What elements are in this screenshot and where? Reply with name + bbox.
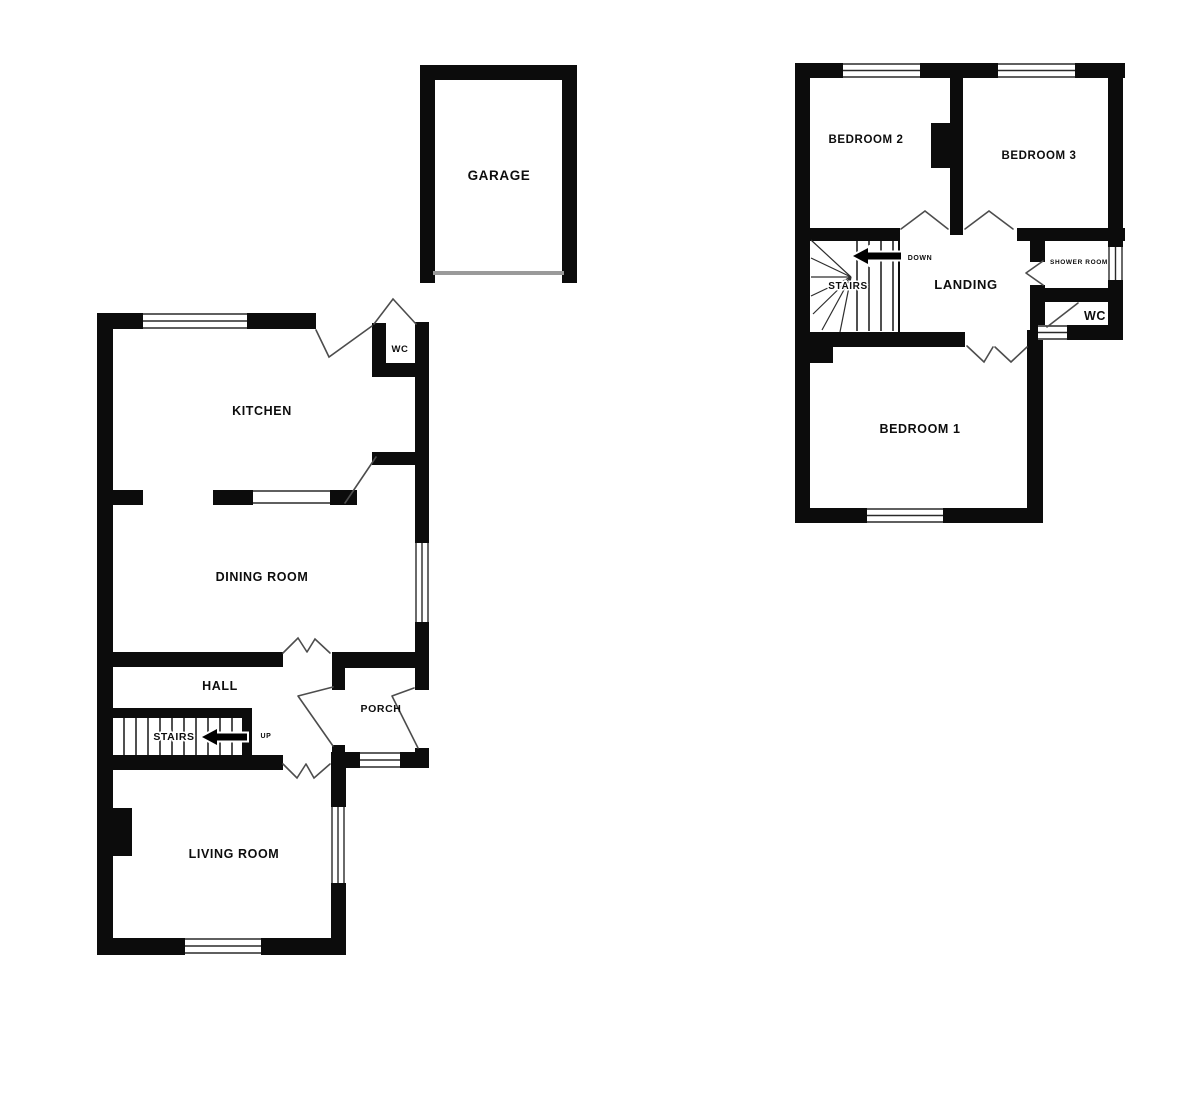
ground-stairs-label: STAIRS — [153, 731, 194, 743]
hall-porch-door-swing — [298, 687, 333, 746]
dining-room-window — [415, 543, 429, 622]
stairs-down-label: DOWN — [908, 255, 933, 262]
wc-window — [1038, 325, 1067, 340]
shower-room-window — [1108, 247, 1123, 280]
wc-door-swing — [374, 299, 416, 324]
bedroom1-chimney-breast — [810, 337, 833, 363]
porch-label: PORCH — [361, 703, 402, 715]
stairs-up-label: UP — [261, 733, 272, 740]
garage-plan: GARAGE — [420, 65, 577, 283]
porch-window — [360, 752, 400, 768]
bedroom2-chimney-breast — [931, 123, 950, 168]
hall-label: HALL — [202, 679, 238, 693]
bedroom2-label: BEDROOM 2 — [828, 134, 903, 146]
first-floor-stairs-label: STAIRS — [828, 281, 868, 292]
first-floor-wc-label: WC — [1084, 309, 1106, 323]
dining-hall-door-swing — [283, 638, 330, 653]
living-room-front-window — [185, 938, 261, 955]
dining-room-label: DINING ROOM — [216, 570, 309, 584]
floorplan-canvas: GARAGE — [0, 0, 1200, 1093]
stairs-up-arrow — [202, 729, 247, 745]
stairs-down-arrow — [853, 248, 901, 264]
bedroom2-window — [843, 63, 920, 78]
shower-room-door-swing — [1026, 261, 1043, 285]
kitchen-window — [143, 313, 247, 329]
first-floor-plan: BEDROOM 2 BEDROOM 3 STAIRS DOWN LANDING … — [795, 63, 1125, 523]
bedroom2-door-swing — [901, 211, 948, 229]
first-floor-walls — [795, 63, 1125, 523]
floorplan-svg: GARAGE — [0, 0, 1200, 1093]
kitchen-hatch-window — [253, 490, 330, 505]
front-door-swing — [392, 688, 418, 748]
shower-room-label: SHOWER ROOM — [1050, 259, 1108, 266]
bedroom1-label: BEDROOM 1 — [879, 422, 960, 436]
bedroom3-label: BEDROOM 3 — [1001, 150, 1076, 162]
living-room-label: LIVING ROOM — [189, 847, 280, 861]
bedroom3-door-swing — [965, 211, 1013, 229]
ground-wc-label: WC — [391, 344, 408, 355]
bedroom3-window — [998, 63, 1075, 78]
living-room-chimney-breast — [113, 808, 132, 856]
first-floor-wc-door-swing — [1047, 303, 1078, 327]
landing-label: LANDING — [934, 277, 997, 292]
bedroom1-door-swing — [967, 346, 1027, 362]
bedroom1-window — [867, 508, 943, 523]
kitchen-label: KITCHEN — [232, 404, 292, 418]
hall-living-door-swing — [283, 764, 330, 778]
garage-door-line — [433, 271, 564, 275]
garage-label: GARAGE — [468, 168, 531, 183]
ground-floor-plan: KITCHEN WC DINING ROOM HALL STAIRS UP PO… — [97, 299, 429, 955]
living-room-side-window — [331, 807, 346, 883]
kitchen-dining-door-swing — [345, 457, 376, 503]
kitchen-wc-door-swing — [316, 326, 372, 357]
